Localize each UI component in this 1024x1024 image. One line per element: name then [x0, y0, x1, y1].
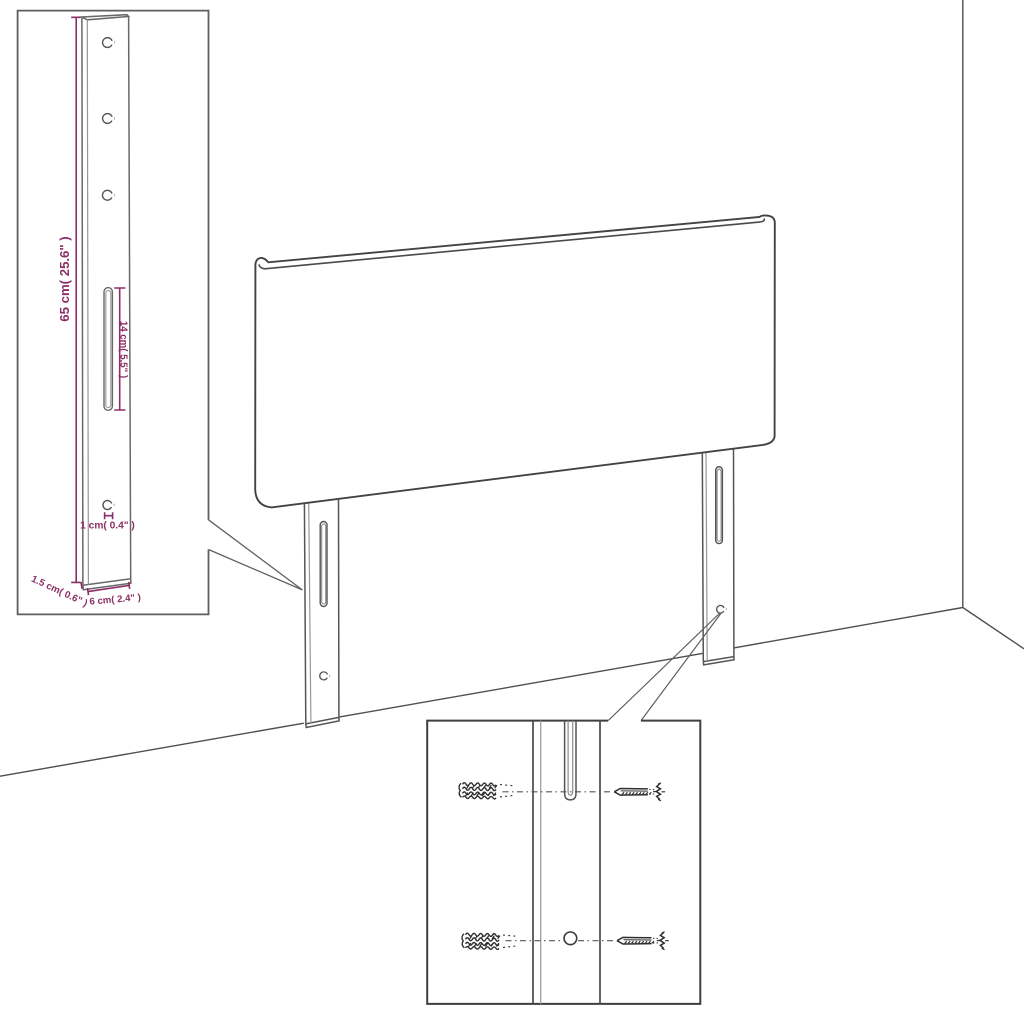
svg-text:14 cm( 5.5" ): 14 cm( 5.5" )	[118, 321, 129, 378]
svg-text:1 cm( 0.4" ): 1 cm( 0.4" )	[80, 521, 135, 532]
svg-text:65 cm( 25.6" ): 65 cm( 25.6" )	[57, 236, 72, 321]
